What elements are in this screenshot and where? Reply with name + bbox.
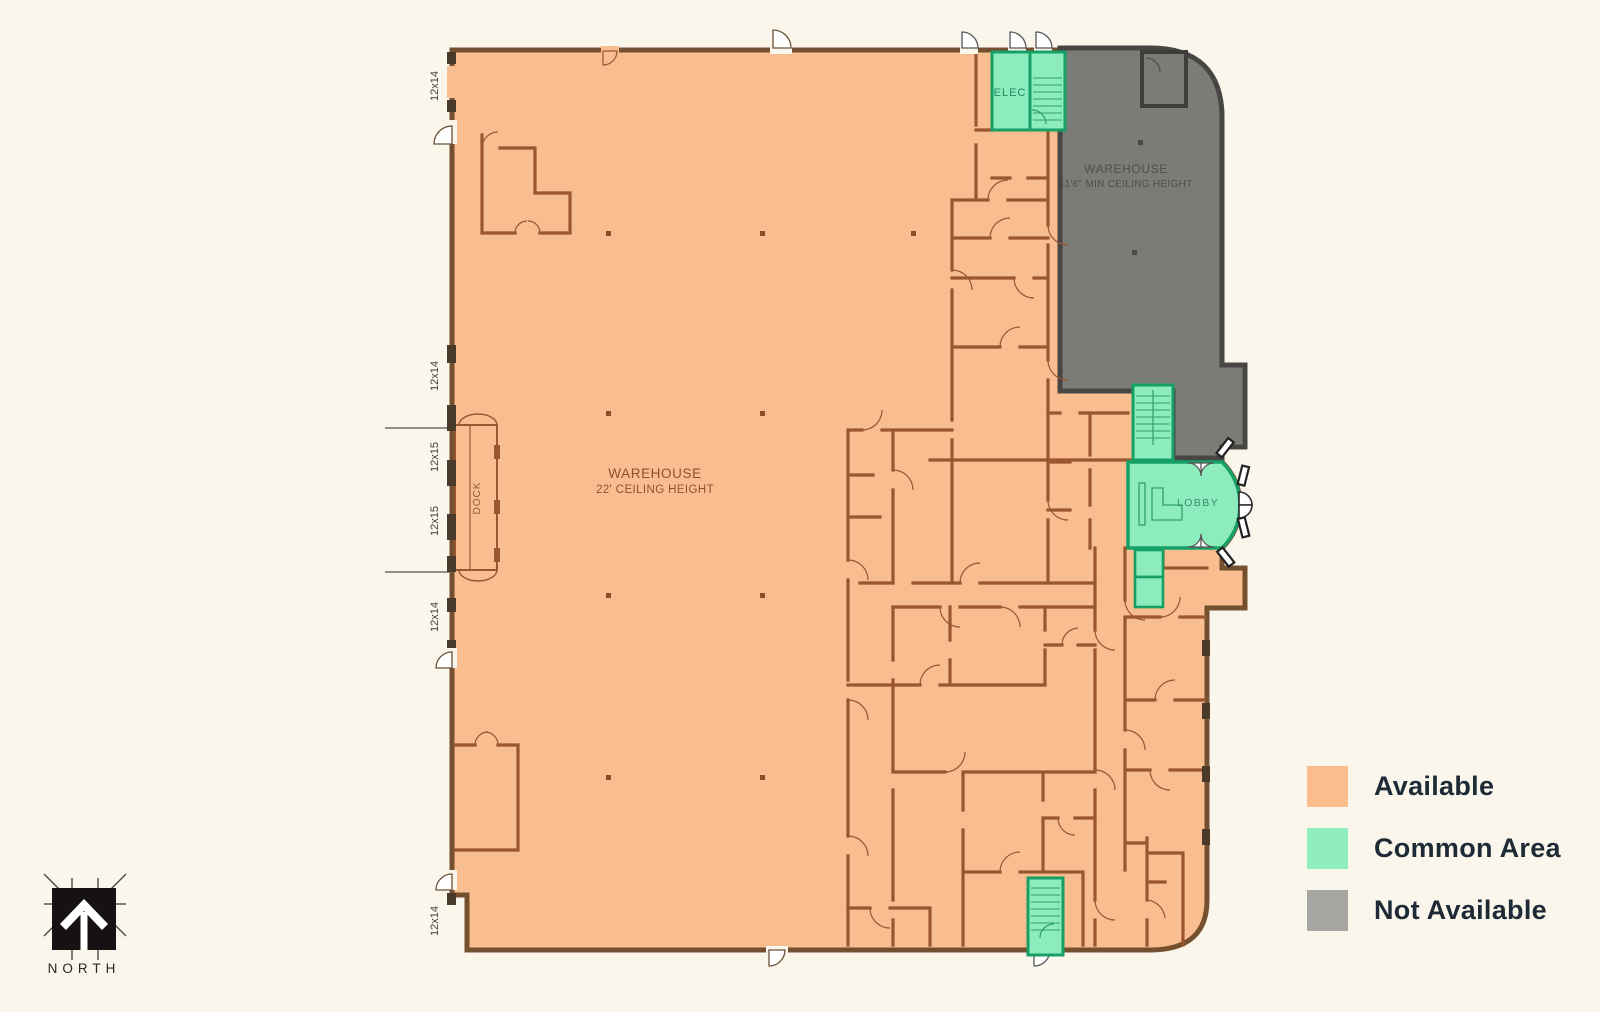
elec-label: ELEC <box>994 87 1027 99</box>
legend-swatch-common-area <box>1307 828 1348 869</box>
legend-swatch-available <box>1307 766 1348 807</box>
legend-row-available: Available <box>1307 766 1587 807</box>
dock-door-label-3: 12x15 <box>429 442 441 472</box>
stair-top <box>1030 52 1065 130</box>
dock-label: DOCK <box>472 482 483 515</box>
gray-interior-room <box>1142 52 1186 106</box>
legend-label-available: Available <box>1374 771 1494 802</box>
dock-door-label-4: 12x15 <box>429 506 441 536</box>
dock-door-label-5: 12x14 <box>429 602 441 632</box>
warehouse-na-sublabel: 11'6" MIN CEILING HEIGHT <box>1059 179 1192 190</box>
warehouse-na-label: WAREHOUSE <box>1084 162 1168 176</box>
legend: Available Common Area Not Available <box>1307 766 1587 952</box>
dock-door-label-6: 12x14 <box>429 906 441 936</box>
warehouse-main-sublabel: 22' CEILING HEIGHT <box>596 484 714 496</box>
legend-row-common-area: Common Area <box>1307 828 1587 869</box>
lobby-label: LOBBY <box>1177 497 1219 509</box>
dock-door-label-1: 12x14 <box>429 71 441 101</box>
legend-label-common-area: Common Area <box>1374 833 1561 864</box>
dock-door-label-2: 12x14 <box>429 361 441 391</box>
legend-swatch-not-available <box>1307 890 1348 931</box>
floorplan-page: { "plan": { "warehouse_main": { "line1":… <box>0 0 1600 1007</box>
legend-row-not-available: Not Available <box>1307 890 1587 931</box>
north-arrow: NORTH <box>44 874 126 976</box>
legend-label-not-available: Not Available <box>1374 895 1547 926</box>
north-label: NORTH <box>48 961 121 976</box>
warehouse-main-label: WAREHOUSE <box>608 466 701 481</box>
